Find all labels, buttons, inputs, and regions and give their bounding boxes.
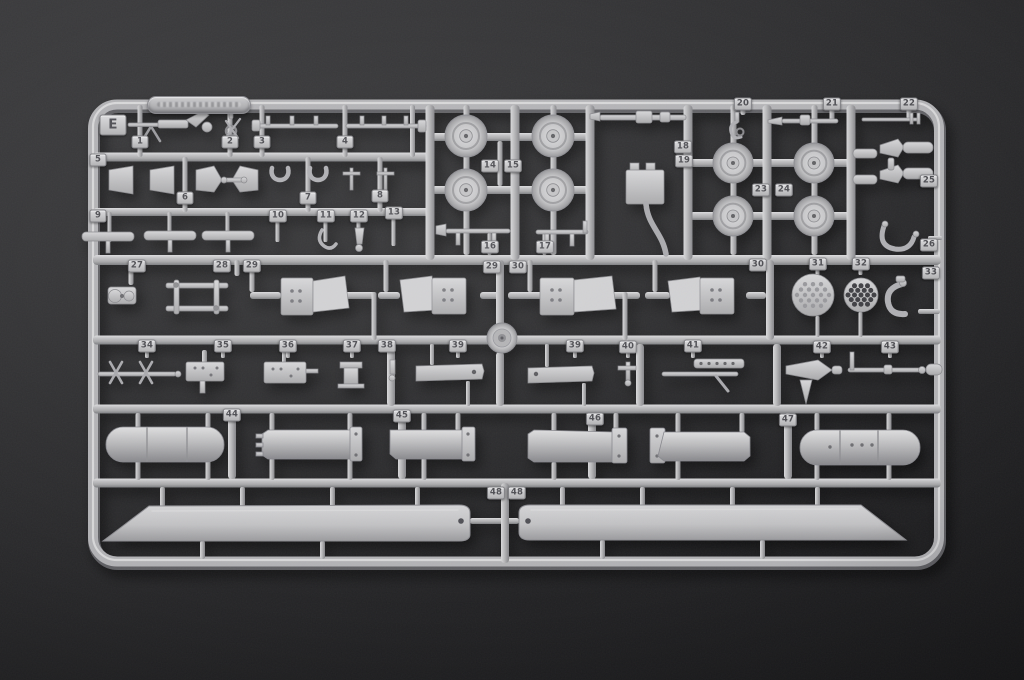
part-number-tab: 26	[920, 239, 938, 252]
part-number-tab: 29	[243, 260, 261, 273]
part-number-tab: 21	[823, 98, 841, 111]
embossed-code-tag	[147, 96, 251, 114]
part-number-tab: 10	[269, 210, 287, 223]
part-number-tab: 42	[813, 341, 831, 354]
part-number-tab: 40	[619, 341, 637, 354]
part-number-tab: 3	[254, 136, 271, 149]
part-number-tab: 39	[449, 340, 467, 353]
part-number-tab: 17	[536, 241, 554, 254]
part-number-tab: 18	[674, 141, 692, 154]
part-number-tab: 4	[337, 136, 354, 149]
part-number-tab: 1	[132, 136, 149, 149]
part-number-tab: 28	[213, 260, 231, 273]
part-number-tab: 35	[214, 340, 232, 353]
part-number-tab: 24	[775, 184, 793, 197]
part-number-tab: 47	[779, 414, 797, 427]
part-number-tab: 20	[734, 98, 752, 111]
part-number-tab: 43	[881, 341, 899, 354]
sprue-letter-tab: E	[100, 115, 127, 136]
part-number-tab: 14	[481, 160, 499, 173]
part-number-tab: 5	[90, 154, 107, 167]
part-number-tab: 11	[317, 210, 335, 223]
part-number-tab: 13	[385, 207, 403, 220]
part-number-tab: 2	[222, 136, 239, 149]
part-number-tab: 8	[372, 190, 389, 203]
part-number-tab: 19	[675, 155, 693, 168]
part-number-tab: 46	[586, 413, 604, 426]
part-number-tab: 27	[128, 260, 146, 273]
part-number-tab: 12	[350, 210, 368, 223]
part-number-tab: 9	[90, 210, 107, 223]
part-number-tab: 39	[566, 340, 584, 353]
part-number-tab: 15	[504, 160, 522, 173]
part-number-tab: 30	[749, 259, 767, 272]
part-number-tab: 32	[852, 258, 870, 271]
part-number-tab: 48	[487, 487, 505, 500]
part-number-tab: 30	[509, 261, 527, 274]
part-number-tab: 31	[809, 258, 827, 271]
part-number-tab: 6	[177, 192, 194, 205]
part-number-tab: 7	[300, 192, 317, 205]
part-number-tab: 33	[922, 267, 940, 280]
photo-stage: E 12345678910111213141516171819202122232…	[0, 0, 1024, 680]
part-number-tab: 25	[920, 175, 938, 188]
part-number-tab: 29	[483, 261, 501, 274]
part-number-tab: 37	[343, 340, 361, 353]
part-number-tab: 16	[481, 241, 499, 254]
part-number-tab: 41	[684, 340, 702, 353]
part-number-tab: 22	[900, 98, 918, 111]
part-number-tab: 45	[393, 410, 411, 423]
part-number-tab: 38	[378, 340, 396, 353]
part-number-tab: 44	[223, 409, 241, 422]
part-number-tab: 23	[752, 184, 770, 197]
embossed-text-illegible	[157, 102, 241, 107]
part-number-tab: 36	[279, 340, 297, 353]
part-number-tab: 34	[138, 340, 156, 353]
part-number-tab: 48	[508, 487, 526, 500]
